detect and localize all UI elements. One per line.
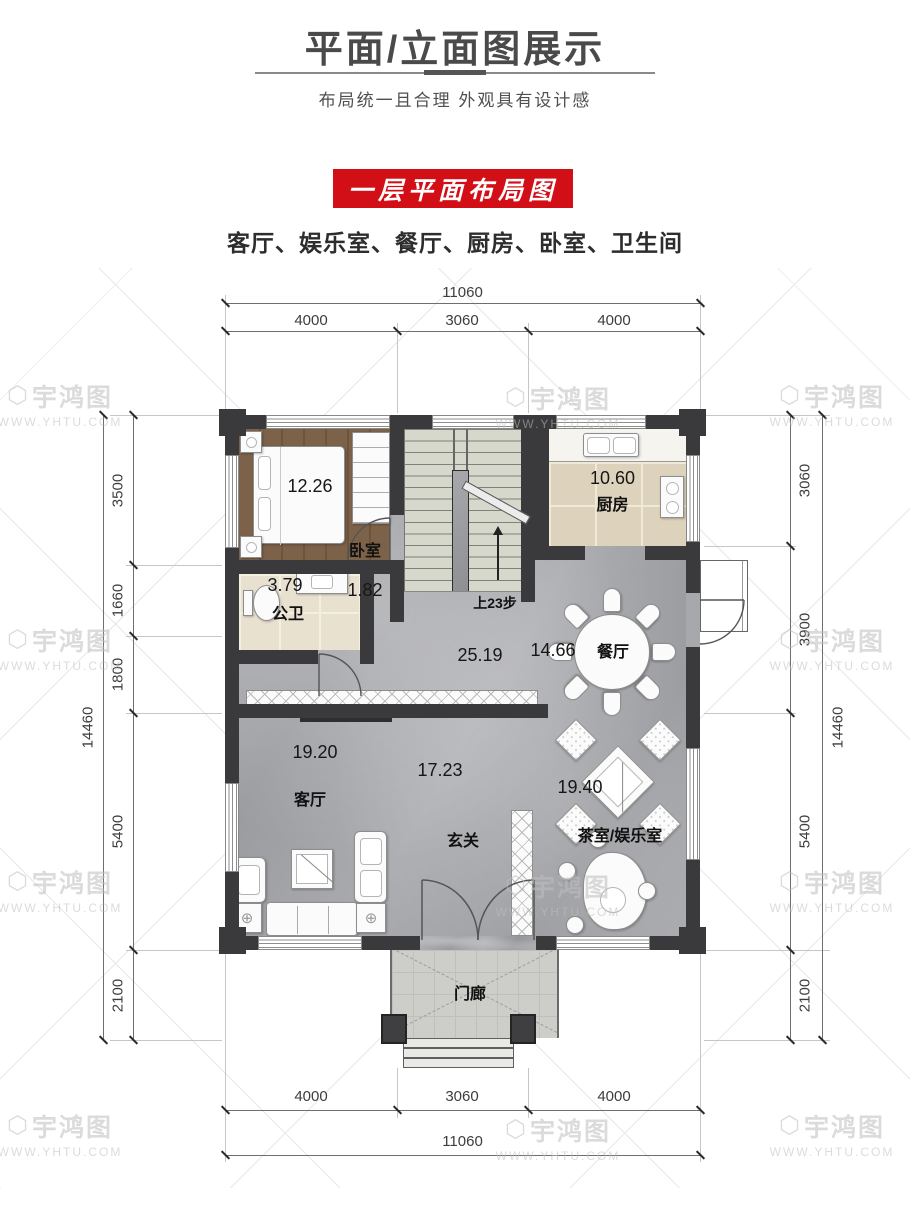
wall-bedroom-bottom xyxy=(239,560,404,574)
foyer-label: 玄关 xyxy=(428,827,498,851)
window xyxy=(225,455,239,548)
porch-label: 门廊 xyxy=(435,980,505,1004)
dim-bottom-seg: 4000 xyxy=(271,1088,351,1105)
dimension-line-right-total xyxy=(822,415,823,1040)
porch-step xyxy=(403,1038,514,1048)
window xyxy=(258,936,362,950)
extension-line xyxy=(704,546,796,547)
dining-label: 餐厅 xyxy=(578,638,648,662)
cushion xyxy=(360,870,382,897)
dim-bottom-total: 11060 xyxy=(420,1133,505,1150)
burner xyxy=(666,482,679,495)
window xyxy=(432,415,514,429)
extension-line xyxy=(126,713,222,714)
seat-divider xyxy=(297,906,298,934)
page-title: 平面/立面图展示 xyxy=(0,18,910,73)
extension-line xyxy=(126,636,222,637)
window xyxy=(686,748,700,860)
tv xyxy=(300,718,392,722)
wardrobe xyxy=(352,432,390,524)
living-area: 19.20 xyxy=(275,742,355,763)
stair-rail xyxy=(453,429,455,470)
stove xyxy=(660,476,684,518)
extension-line xyxy=(110,415,222,416)
tea-stool xyxy=(558,862,576,880)
living-label: 客厅 xyxy=(275,786,345,810)
floor-plan-poster: 平面/立面图展示 布局统一且合理 外观具有设计感 一层平面布局图 客厅、娱乐室、… xyxy=(0,0,910,1217)
cushion xyxy=(238,865,260,895)
title-divider-accent xyxy=(424,70,486,75)
tea-tray xyxy=(600,887,626,913)
dim-left-total: 14460 xyxy=(80,683,97,773)
extension-line xyxy=(528,323,529,413)
toilet-tank xyxy=(243,590,253,616)
dim-left-seg: 1660 xyxy=(110,571,127,631)
dim-right-total: 14460 xyxy=(830,683,847,773)
dimension-line-top-segments xyxy=(225,331,700,332)
window xyxy=(266,415,390,429)
tea-stool xyxy=(638,882,656,900)
stair-edge xyxy=(404,591,521,592)
entry-double-door xyxy=(420,878,536,942)
window xyxy=(686,455,700,542)
wall-bedroom-right xyxy=(390,429,404,515)
dim-bottom-seg: 4000 xyxy=(574,1088,654,1105)
window xyxy=(556,936,650,950)
section-banner: 一层平面布局图 xyxy=(333,169,573,208)
hall-area: 25.19 xyxy=(440,645,520,666)
extension-line xyxy=(700,954,701,1162)
tea-stool xyxy=(566,916,584,934)
corridor-area: 1.82 xyxy=(333,580,397,601)
dim-bottom-seg: 3060 xyxy=(422,1088,502,1105)
bedroom-label: 卧室 xyxy=(330,537,400,561)
extension-line xyxy=(397,323,398,413)
dim-left-seg: 5400 xyxy=(110,802,127,862)
wall-living-top xyxy=(239,704,548,718)
dim-top-seg: 4000 xyxy=(574,312,654,329)
sink-basin xyxy=(613,437,636,454)
dim-right-seg: 2100 xyxy=(797,966,814,1026)
dim-top-total: 11060 xyxy=(420,284,505,301)
lamp xyxy=(246,542,257,553)
wall-stair-kitchen xyxy=(521,429,549,560)
kitchen-label: 厨房 xyxy=(570,491,655,515)
stair-up-arrow xyxy=(497,534,499,580)
kitchen-sink xyxy=(583,433,639,457)
burner xyxy=(666,501,679,514)
dim-right-seg: 3900 xyxy=(797,600,814,660)
corner-pier xyxy=(219,409,246,436)
stair-rail xyxy=(466,429,468,470)
dining-area: 14.66 xyxy=(518,640,588,661)
kitchen-area: 10.60 xyxy=(570,468,655,489)
extension-line xyxy=(225,295,226,413)
stair-note: 上23步 xyxy=(455,593,535,613)
wall-kitchen-bottom xyxy=(549,546,585,560)
table-diagonal xyxy=(622,762,623,812)
living-area2: 17.23 xyxy=(400,760,480,781)
lamp xyxy=(246,437,257,448)
nightstand xyxy=(240,536,262,558)
porch-step xyxy=(403,1048,514,1058)
window xyxy=(556,415,646,429)
cabinet-strip xyxy=(246,690,538,705)
dim-right-seg: 3060 xyxy=(797,451,814,511)
wall-kitchen-bottom xyxy=(645,546,686,560)
sink-basin xyxy=(587,437,610,454)
dining-door-arc xyxy=(698,596,748,646)
corner-pier xyxy=(219,927,246,954)
extension-line xyxy=(704,713,796,714)
stair-up-arrowhead xyxy=(493,526,503,535)
dining-chair xyxy=(603,692,621,716)
porch-column xyxy=(381,1014,407,1044)
extension-line xyxy=(704,1040,830,1041)
side-table: ⊕ xyxy=(356,903,386,933)
extension-line xyxy=(704,415,830,416)
dimension-line-left-total xyxy=(103,415,104,1040)
window xyxy=(225,783,239,872)
cushion xyxy=(360,838,382,865)
dim-left-seg: 1800 xyxy=(110,645,127,705)
dimension-line-left-segments xyxy=(133,415,134,1040)
porch-step xyxy=(403,1058,514,1068)
pillow xyxy=(258,497,271,531)
bath-area: 3.79 xyxy=(255,575,315,596)
dim-left-seg: 3500 xyxy=(110,461,127,521)
extension-line xyxy=(700,295,701,413)
coffee-table-top xyxy=(296,854,328,884)
bath-label: 公卫 xyxy=(258,600,318,624)
dim-top-seg: 3060 xyxy=(422,312,502,329)
sofa xyxy=(266,902,358,936)
wall-bath-bottom xyxy=(239,650,318,664)
extension-line xyxy=(110,1040,222,1041)
extension-line xyxy=(225,954,226,1162)
dining-chair xyxy=(652,643,676,661)
dimension-line-bottom-segments xyxy=(225,1110,700,1111)
extension-line xyxy=(126,565,222,566)
corner-pier xyxy=(679,927,706,954)
dimension-line-top-total xyxy=(225,303,700,304)
dimension-line-bottom-total xyxy=(225,1155,700,1156)
seat-divider xyxy=(328,906,329,934)
porch-column xyxy=(510,1014,536,1044)
tea-label: 茶室/娱乐室 xyxy=(558,822,682,846)
bedroom-area: 12.26 xyxy=(265,476,355,497)
corner-pier xyxy=(679,409,706,436)
dining-chair xyxy=(603,588,621,612)
rooms-summary: 客厅、娱乐室、餐厅、厨房、卧室、卫生间 xyxy=(0,224,910,258)
extension-line xyxy=(126,950,222,951)
dimension-line-right-segments xyxy=(790,415,791,1040)
dim-right-seg: 5400 xyxy=(797,802,814,862)
dim-left-seg: 2100 xyxy=(110,966,127,1026)
coffee-table xyxy=(291,849,333,889)
armchair xyxy=(354,831,387,903)
bath-door-arc xyxy=(317,652,363,698)
extension-line xyxy=(704,950,830,951)
tea-area: 19.40 xyxy=(545,777,615,798)
dim-top-seg: 4000 xyxy=(271,312,351,329)
page-subtitle: 布局统一且合理 外观具有设计感 xyxy=(0,86,910,111)
